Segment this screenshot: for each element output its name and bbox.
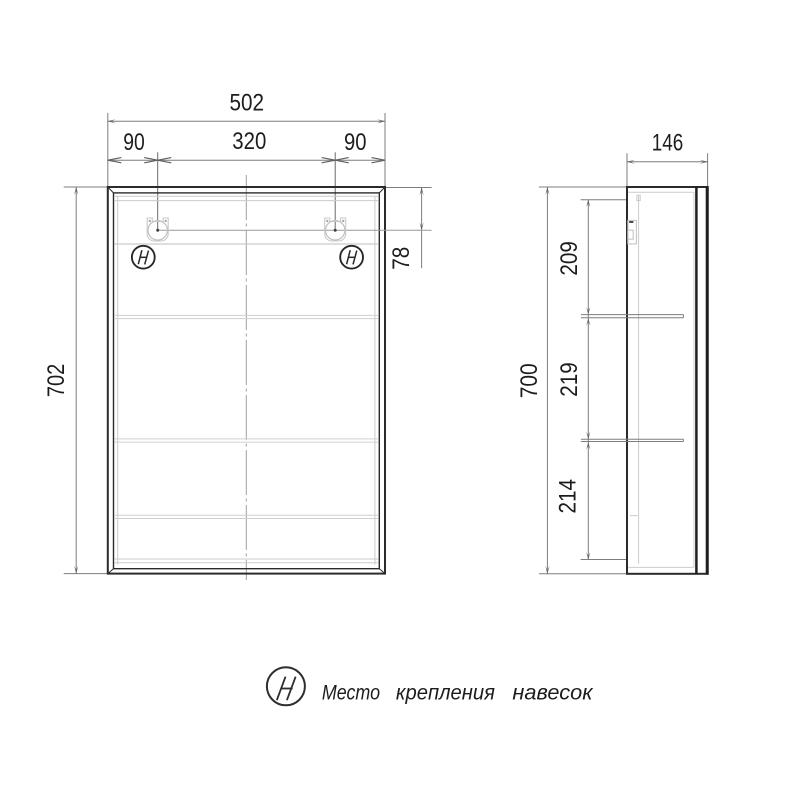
svg-text:320: 320 [232, 128, 266, 155]
svg-text:90: 90 [123, 129, 145, 156]
svg-text:214: 214 [555, 479, 582, 514]
svg-text:78: 78 [388, 247, 415, 270]
svg-text:крепления: крепления [396, 681, 495, 704]
svg-text:209: 209 [556, 241, 583, 276]
svg-text:502: 502 [230, 89, 265, 116]
svg-text:90: 90 [344, 129, 367, 156]
svg-text:навесок: навесок [512, 681, 593, 704]
svg-text:219: 219 [556, 362, 583, 397]
svg-text:146: 146 [652, 129, 684, 156]
svg-text:Место: Место [322, 681, 380, 704]
svg-text:702: 702 [43, 364, 70, 398]
svg-text:700: 700 [516, 363, 543, 398]
